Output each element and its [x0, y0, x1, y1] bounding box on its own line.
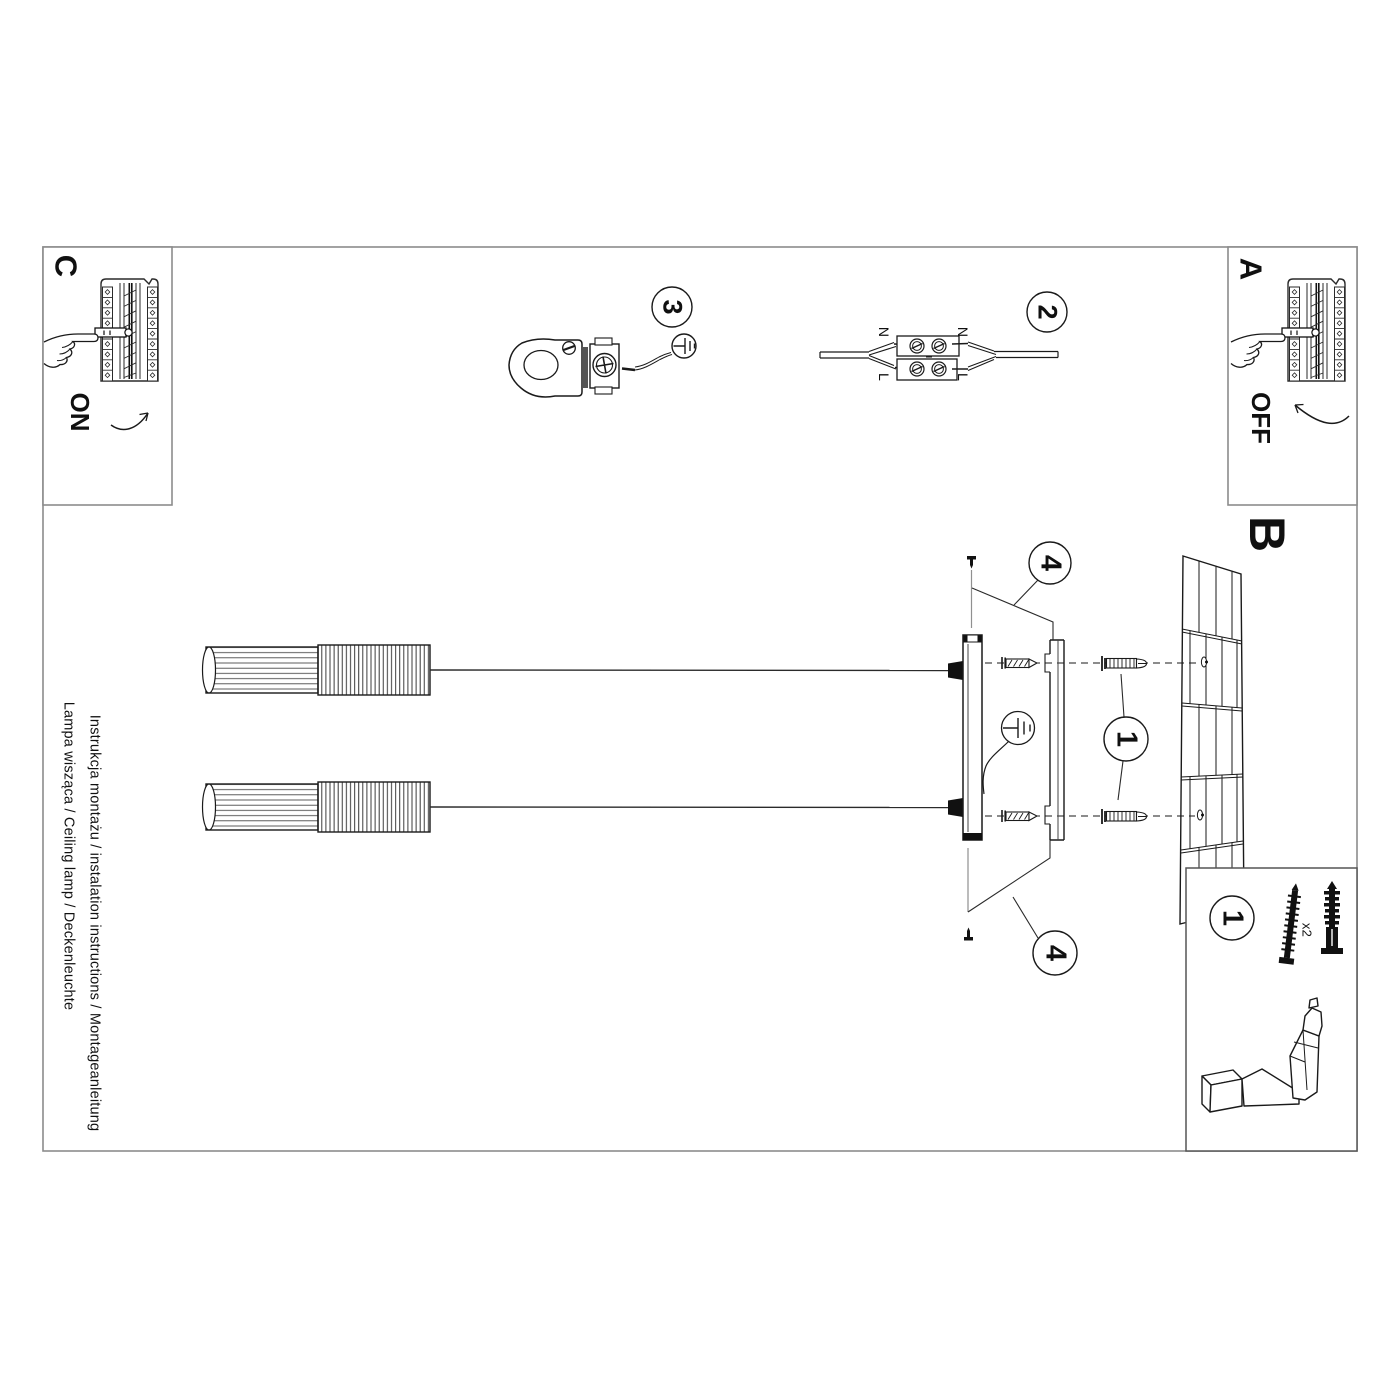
wire-label-l-right: L — [956, 373, 970, 381]
pendant-tube-bottom — [203, 782, 964, 832]
mounting-bracket — [1045, 640, 1064, 840]
wire-label-n-right: N — [956, 327, 970, 337]
wall-plug-bottom — [1102, 809, 1147, 824]
instruction-sheet: C A B ON OFF 3 2 1 4 4 1 N N L L x2 Inst… — [0, 0, 1400, 1400]
mounting-screw-bottom — [1002, 810, 1037, 822]
power-on-label: ON — [67, 393, 93, 432]
step4-badge-top: 4 — [1036, 555, 1065, 571]
step3-badge: 3 — [659, 299, 686, 314]
section-label-b: B — [1242, 516, 1292, 552]
tools-box — [1186, 868, 1357, 1151]
instruction-drawing — [0, 0, 1400, 1400]
margin-title-line2: Lampa wisząca / Ceiling lamp / Deckenleu… — [61, 702, 76, 1011]
cover-screw-top — [967, 556, 976, 628]
earth-symbol-icon — [672, 334, 696, 358]
wire-label-l-left: L — [877, 373, 891, 381]
sheet-frame — [43, 247, 1357, 1151]
step2-terminal-wiring — [820, 292, 1067, 380]
lamp-assembly — [203, 542, 1198, 975]
wall-plug-top — [1102, 656, 1147, 671]
mounting-screw-top — [1002, 657, 1037, 669]
margin-title-line1: Instrukcja montażu / instalation instruc… — [87, 715, 102, 1132]
step4-badge-bottom: 4 — [1041, 945, 1070, 961]
leader-lines-badges — [1013, 580, 1124, 938]
step1-badge-tools: 1 — [1218, 910, 1247, 926]
section-label-a: A — [1236, 258, 1267, 280]
screw-quantity-label: x2 — [1301, 923, 1314, 937]
cover-screw-bottom — [964, 848, 973, 941]
step1-badge-main: 1 — [1112, 731, 1141, 747]
canopy-plate — [963, 635, 982, 840]
earth-symbol-main-icon — [983, 712, 1034, 795]
power-off-label: OFF — [1248, 392, 1274, 444]
wire-label-n-left: N — [877, 327, 891, 337]
step2-badge: 2 — [1034, 304, 1061, 319]
pendant-tube-top — [203, 645, 964, 695]
section-label-c: C — [51, 255, 82, 277]
